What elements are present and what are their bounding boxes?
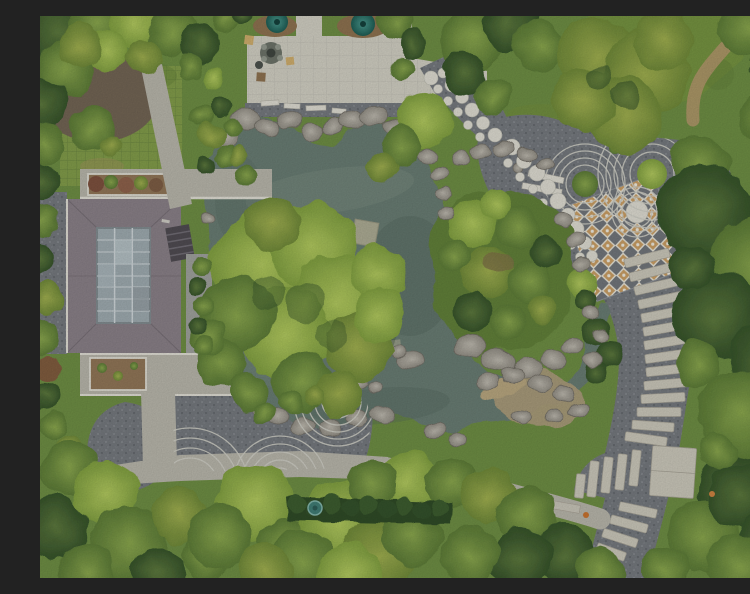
aerial-garden-photo: Top-down aerial view of a Chinese-style … xyxy=(40,16,750,578)
photo-grain-overlay xyxy=(40,16,750,578)
garden-scene xyxy=(40,16,750,578)
